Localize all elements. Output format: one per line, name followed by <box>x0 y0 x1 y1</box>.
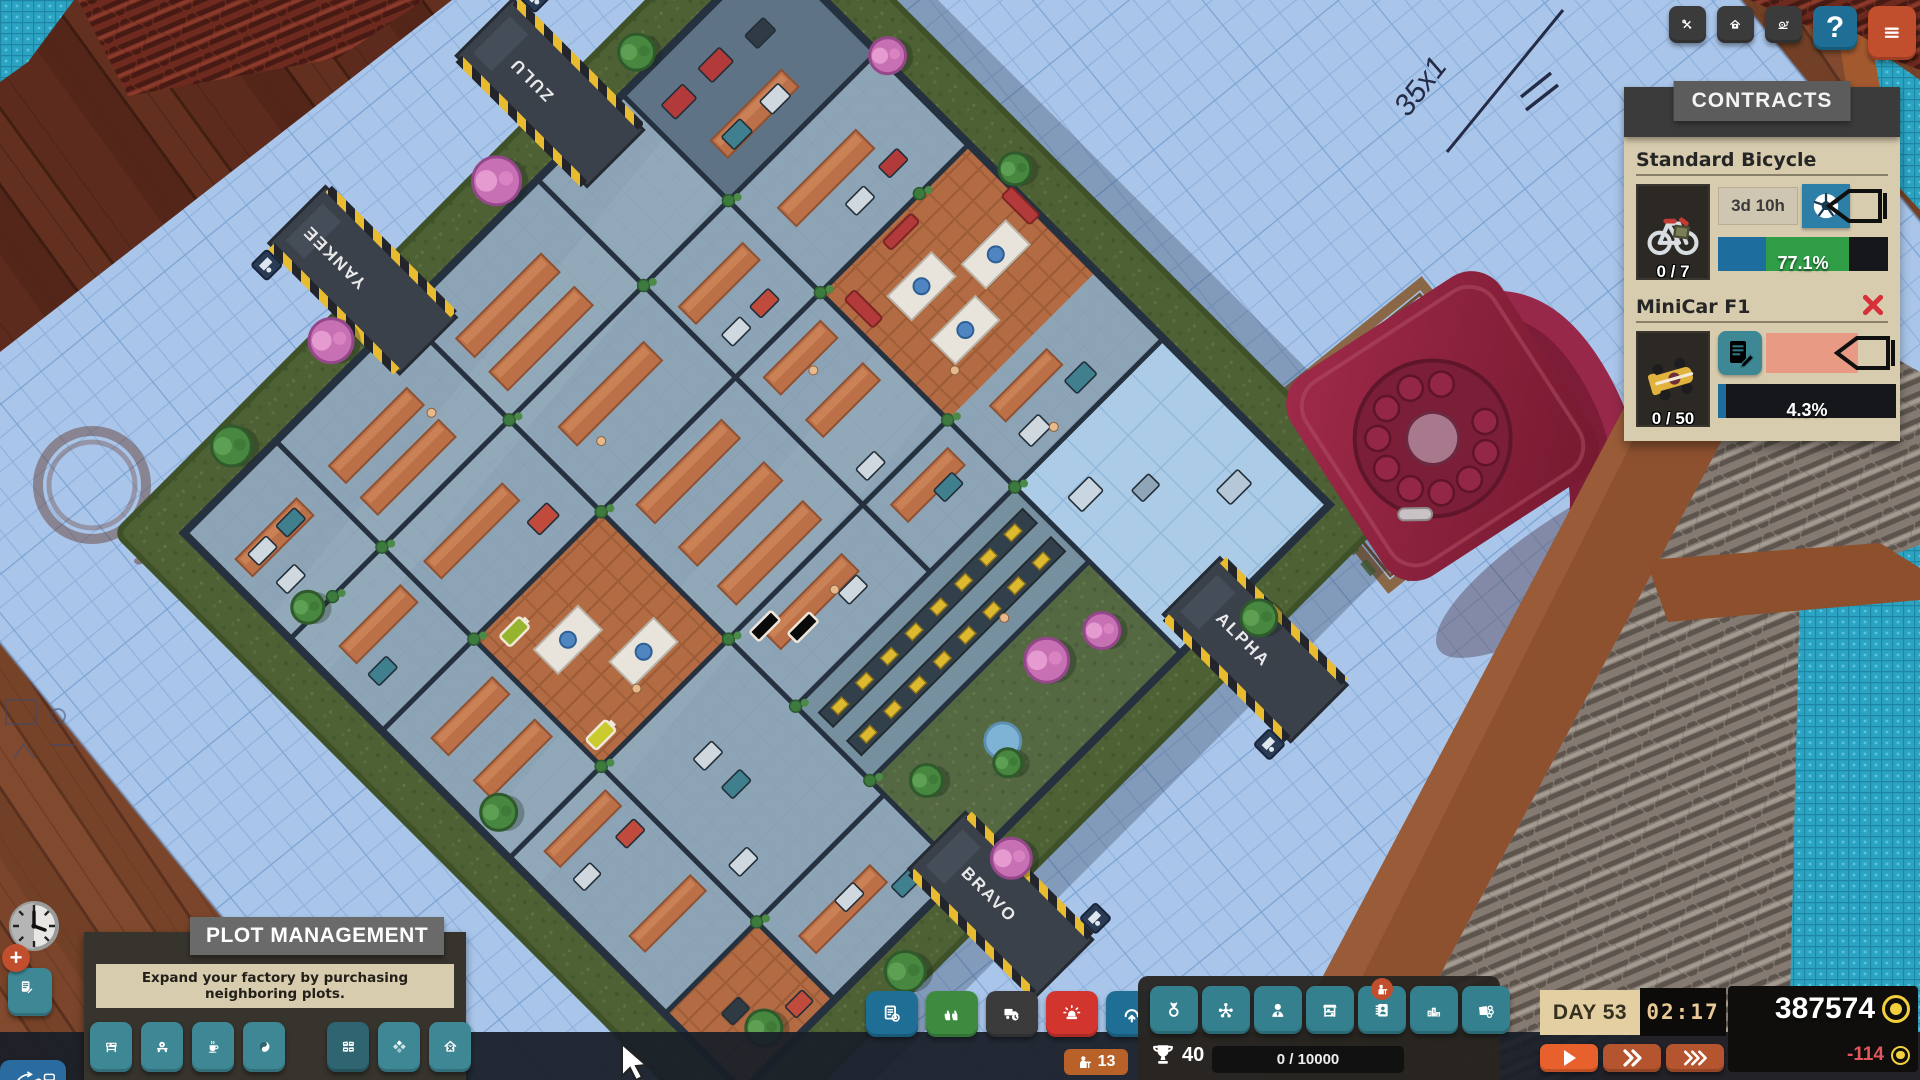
speed-controls <box>1540 1044 1724 1072</box>
main-menu-button[interactable] <box>1868 6 1916 60</box>
wellness-button[interactable] <box>243 1022 285 1072</box>
machines-button[interactable] <box>90 1022 132 1072</box>
close-icon <box>1860 292 1890 318</box>
decorations-button[interactable] <box>429 1022 471 1072</box>
contract-item-minicar-f1[interactable]: MiniCar F1 0 / 50 <box>1636 294 1888 427</box>
workers-button[interactable] <box>926 991 978 1037</box>
build-toolbar <box>90 1022 471 1072</box>
snail-icon <box>1775 12 1793 37</box>
svg-text:1: 1 <box>1433 1008 1436 1013</box>
contract-count: 0 / 7 <box>1656 262 1689 282</box>
worker-icon <box>1077 1054 1093 1070</box>
contacts-button[interactable] <box>1358 986 1406 1034</box>
research-tree-button[interactable] <box>1202 986 1250 1034</box>
bicycle-icon <box>1644 203 1702 261</box>
trophy-value: 40 <box>1182 1044 1204 1067</box>
trophy-score: 40 <box>1150 1042 1204 1068</box>
market-stall-icon <box>1317 993 1343 1026</box>
day-counter: DAY 53 <box>1540 990 1640 1035</box>
svg-text:2: 2 <box>1429 1011 1432 1016</box>
person-icon <box>1265 993 1291 1026</box>
play2-icon <box>1615 1049 1648 1068</box>
contract-time-left: 3d 10h <box>1718 187 1798 225</box>
snail-speed-button[interactable] <box>1765 6 1802 43</box>
finances-button[interactable] <box>1462 986 1510 1034</box>
logistics-button[interactable] <box>986 991 1038 1037</box>
contract-product-thumbnail: 0 / 50 <box>1636 331 1710 427</box>
hands-icon <box>938 998 967 1030</box>
arrow-tag-icon <box>1824 184 1888 228</box>
planning-cube-icon <box>6 1061 60 1080</box>
contract-progress-label: 77.1% <box>1718 246 1888 280</box>
break-room-button[interactable] <box>192 1022 234 1072</box>
balance-change: -114 <box>1847 1044 1884 1066</box>
contract-title: MiniCar F1 <box>1636 296 1888 318</box>
sign-contract-button[interactable] <box>1718 331 1762 375</box>
contracts-header-bar: CONTRACTS <box>1624 87 1900 137</box>
coffee-icon <box>202 1030 224 1065</box>
minicar-icon <box>1644 350 1702 408</box>
siren-icon <box>1058 998 1087 1030</box>
truck-clock-icon <box>998 998 1027 1030</box>
medal-icon <box>1161 993 1187 1026</box>
plot-management-title: PLOT MANAGEMENT <box>190 917 444 955</box>
alerts-button[interactable] <box>1046 991 1098 1037</box>
market-button[interactable] <box>1306 986 1354 1034</box>
mouse-cursor <box>616 1042 650 1080</box>
yinyang-icon <box>253 1030 275 1065</box>
workstations-button[interactable] <box>141 1022 183 1072</box>
svg-text:3: 3 <box>1437 1013 1439 1017</box>
contracts-panel: CONTRACTS Standard Bicycle 0 / 7 3d 10h <box>1624 87 1900 441</box>
home-button[interactable] <box>1717 6 1754 43</box>
ranking-button[interactable]: 213 <box>1410 986 1458 1034</box>
tools-icon <box>1679 12 1697 37</box>
main-action-toolbar <box>866 991 1158 1037</box>
game-clock: 02:17 <box>1640 988 1726 1036</box>
management-toolbar: 213 <box>1150 986 1510 1034</box>
staff-button[interactable] <box>1254 986 1302 1034</box>
tasks-notes-button[interactable] <box>8 968 52 1016</box>
speed-fastest-button[interactable] <box>1666 1044 1724 1072</box>
notes-pencil-icon <box>19 976 41 1008</box>
contract-product-thumbnail: 0 / 7 <box>1636 184 1710 280</box>
add-notification-badge: + <box>2 944 30 972</box>
saw-icon <box>151 1030 173 1065</box>
workbench-icon <box>100 1030 122 1065</box>
money-icon <box>1473 993 1499 1026</box>
trophy-icon <box>1150 1042 1176 1068</box>
production-orders-button[interactable] <box>866 991 918 1037</box>
notification-badge <box>1371 978 1393 1000</box>
coin-icon <box>1882 995 1910 1023</box>
home-heart-icon <box>1727 12 1745 37</box>
flooring-button[interactable] <box>378 1022 420 1072</box>
chair-cushion <box>1790 545 1920 1035</box>
research-progress: 0 / 10000 <box>1212 1046 1404 1073</box>
game-screen: 35x1 <box>0 0 1920 1080</box>
speed-play-button[interactable] <box>1540 1044 1598 1072</box>
contract-item-standard-bicycle[interactable]: Standard Bicycle 0 / 7 3d 10h <box>1636 147 1888 280</box>
workers-count: 13 <box>1098 1053 1116 1071</box>
top-right-toolbar: ? <box>1669 6 1916 60</box>
help-button[interactable]: ? <box>1813 6 1857 50</box>
speed-fast-button[interactable] <box>1603 1044 1661 1072</box>
coin-icon <box>1891 1046 1910 1065</box>
floor-tiles-icon <box>388 1030 410 1065</box>
arrow-tag-icon <box>1832 331 1896 375</box>
contract-edit-icon <box>1724 337 1756 369</box>
plots-button[interactable] <box>327 1022 369 1072</box>
tech-tree-icon <box>1213 993 1239 1026</box>
planning-mode-button[interactable] <box>0 1060 66 1080</box>
document-gear-icon <box>878 998 907 1030</box>
workers-count-badge: 13 <box>1064 1049 1128 1075</box>
medals-button[interactable] <box>1150 986 1198 1034</box>
contract-progress-label: 4.3% <box>1718 393 1896 427</box>
money-panel: 387574 -114 <box>1728 986 1918 1072</box>
close-contract-button[interactable] <box>1860 290 1890 320</box>
balance-value: 387574 <box>1775 992 1875 1026</box>
help-label: ? <box>1826 11 1844 45</box>
plots-icon <box>337 1030 359 1065</box>
play-icon <box>1552 1049 1585 1068</box>
play3-icon <box>1678 1049 1711 1068</box>
podium-icon: 213 <box>1421 993 1447 1026</box>
menu-icon <box>1879 14 1905 51</box>
contract-count: 0 / 50 <box>1652 409 1695 429</box>
settings-tools-button[interactable] <box>1669 6 1706 43</box>
contracts-title: CONTRACTS <box>1674 81 1851 121</box>
contract-title: Standard Bicycle <box>1636 149 1888 171</box>
house-tools-icon <box>439 1030 461 1065</box>
plot-management-description: Expand your factory by purchasing neighb… <box>96 964 454 1008</box>
